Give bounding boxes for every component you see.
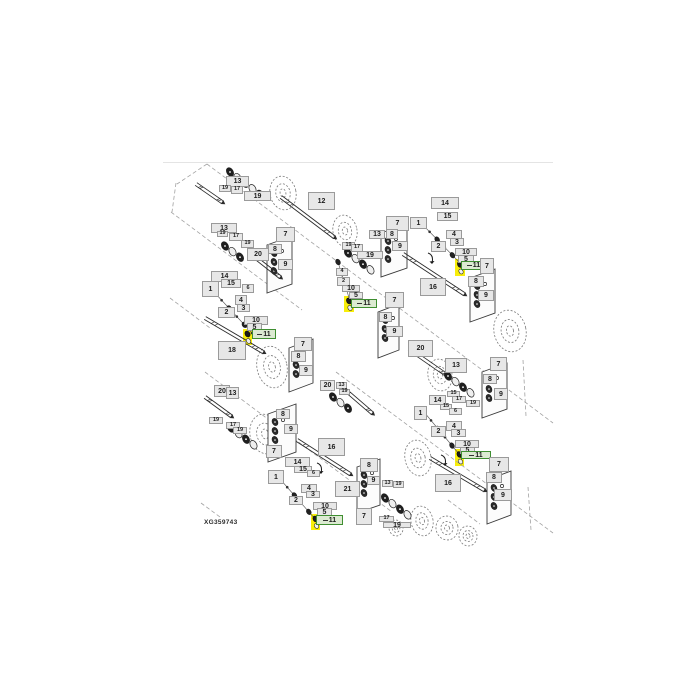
part-callout-8[interactable]: 8 <box>386 229 398 239</box>
part-callout-20[interactable]: 20 <box>320 380 335 391</box>
part-callout-19[interactable]: 19 <box>393 481 404 488</box>
part-callout-16[interactable]: 16 <box>420 278 446 296</box>
part-callout-20[interactable]: 20 <box>247 248 269 261</box>
part-callout-9[interactable]: 9 <box>278 259 293 270</box>
figure-code: XG359743 <box>204 519 237 526</box>
parts-diagram-canvas: 1319171912713891917191415143210511789161… <box>0 0 700 700</box>
part-callout-4[interactable]: 4 <box>336 268 348 276</box>
part-callout-1[interactable]: 1 <box>414 406 427 420</box>
part-callout-20[interactable]: 20 <box>408 340 433 357</box>
selected-part-callout-11[interactable]: 11 <box>316 515 343 525</box>
part-callout-15[interactable]: 15 <box>221 279 241 288</box>
part-callout-19[interactable]: 19 <box>219 185 231 192</box>
part-callout-8[interactable]: 8 <box>276 409 290 419</box>
part-callout-6[interactable]: 6 <box>449 408 462 415</box>
part-callout-7[interactable]: 7 <box>490 357 507 371</box>
part-callout-7[interactable]: 7 <box>276 227 295 242</box>
part-callout-19[interactable]: 19 <box>217 231 228 237</box>
part-callout-9[interactable]: 9 <box>284 424 298 434</box>
part-callout-2[interactable]: 2 <box>431 241 446 252</box>
part-callout-14[interactable]: 14 <box>431 197 459 209</box>
part-callout-9[interactable]: 9 <box>386 326 403 337</box>
part-callout-7[interactable]: 7 <box>480 258 494 274</box>
part-callout-8[interactable]: 8 <box>379 312 392 322</box>
part-callout-2[interactable]: 2 <box>431 426 446 437</box>
part-callout-7[interactable]: 7 <box>489 457 509 472</box>
part-callout-10[interactable]: 10 <box>342 285 360 292</box>
part-callout-17[interactable]: 17 <box>231 186 243 194</box>
part-callout-7[interactable]: 7 <box>294 337 312 351</box>
part-callout-6[interactable]: 6 <box>242 284 254 293</box>
part-callout-9[interactable]: 9 <box>299 365 313 376</box>
part-callout-1[interactable]: 1 <box>268 470 284 484</box>
part-callout-9[interactable]: 9 <box>494 388 508 400</box>
part-callout-2[interactable]: 2 <box>218 307 235 318</box>
part-callout-13[interactable]: 13 <box>369 230 385 239</box>
part-callout-5[interactable]: 5 <box>349 292 363 299</box>
part-callout-9[interactable]: 9 <box>367 476 380 485</box>
selected-part-callout-11[interactable]: 11 <box>351 299 377 308</box>
part-callout-19[interactable]: 19 <box>383 522 411 528</box>
part-callout-1[interactable]: 1 <box>410 217 427 229</box>
part-callout-12[interactable]: 12 <box>308 192 335 210</box>
part-callout-8[interactable]: 8 <box>483 374 497 384</box>
selected-part-callout-11[interactable]: 11 <box>252 329 276 339</box>
part-callout-3[interactable]: 3 <box>450 238 464 246</box>
part-callout-21[interactable]: 21 <box>335 481 360 497</box>
part-callout-1[interactable]: 1 <box>202 281 219 297</box>
part-callout-7[interactable]: 7 <box>385 292 404 308</box>
part-callout-3[interactable]: 3 <box>237 304 250 312</box>
part-callout-7[interactable]: 7 <box>266 445 282 458</box>
part-callout-17[interactable]: 17 <box>452 396 466 403</box>
part-callout-19[interactable]: 19 <box>233 427 247 434</box>
part-callout-16[interactable]: 16 <box>435 474 461 492</box>
part-callout-13[interactable]: 13 <box>226 387 239 399</box>
part-callout-9[interactable]: 9 <box>392 241 408 251</box>
part-callout-19[interactable]: 19 <box>241 240 254 248</box>
part-callout-3[interactable]: 3 <box>306 491 320 498</box>
part-callout-7[interactable]: 7 <box>356 508 372 525</box>
part-callout-8[interactable]: 8 <box>486 472 502 483</box>
part-callout-19[interactable]: 19 <box>209 417 223 424</box>
part-callout-6[interactable]: 6 <box>307 470 320 477</box>
part-callout-9[interactable]: 9 <box>494 489 512 501</box>
part-callout-15[interactable]: 15 <box>437 212 458 221</box>
part-callout-9[interactable]: 9 <box>478 290 494 301</box>
part-callout-13[interactable]: 13 <box>382 480 393 487</box>
part-callout-8[interactable]: 8 <box>291 351 306 362</box>
part-callout-19[interactable]: 19 <box>466 400 480 407</box>
part-callout-8[interactable]: 8 <box>268 244 282 254</box>
part-callout-19[interactable]: 19 <box>339 389 350 395</box>
selected-part-callout-11[interactable]: 11 <box>461 451 491 459</box>
part-callout-8[interactable]: 8 <box>360 458 378 472</box>
callout-layer: 1319171912713891917191415143210511789161… <box>0 0 700 700</box>
part-callout-3[interactable]: 3 <box>451 429 466 437</box>
part-callout-13[interactable]: 13 <box>445 358 467 373</box>
part-callout-2[interactable]: 2 <box>289 496 303 505</box>
part-callout-19[interactable]: 19 <box>244 191 271 201</box>
part-callout-19[interactable]: 19 <box>357 251 383 259</box>
part-callout-16[interactable]: 16 <box>318 438 345 456</box>
part-callout-18[interactable]: 18 <box>218 341 246 360</box>
part-callout-8[interactable]: 8 <box>468 276 484 287</box>
